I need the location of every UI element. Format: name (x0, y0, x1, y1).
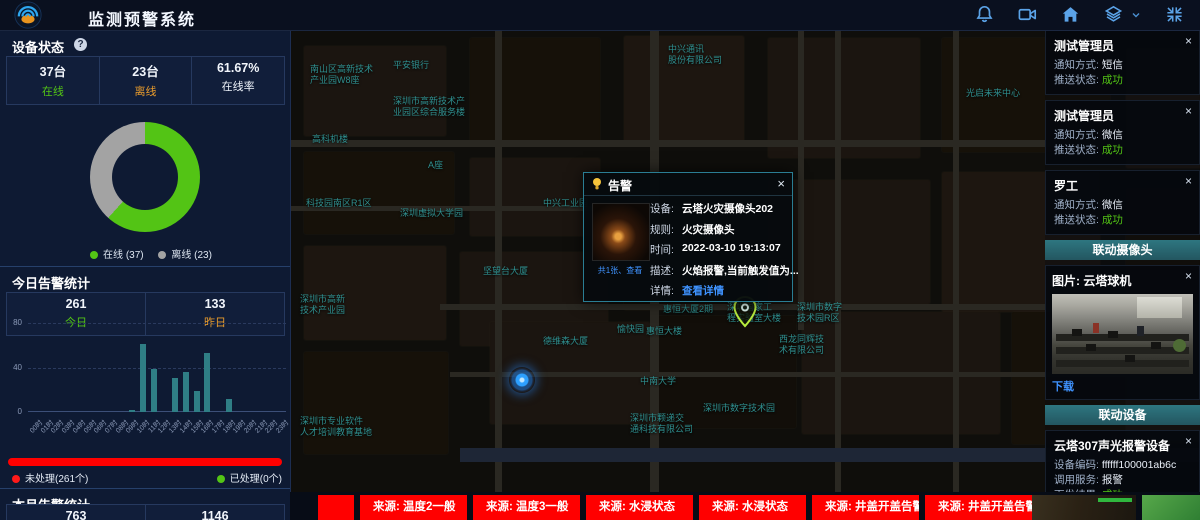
legend-dot-online (90, 251, 98, 259)
popup-row: 详情:查看详情 (650, 283, 786, 298)
video-camera-icon[interactable] (1018, 5, 1037, 24)
map-label: 德维森大厦 (543, 336, 588, 347)
notification-card: 测试管理员×通知方式: 微信推送状态: 成功 (1045, 100, 1200, 165)
alarm-bulb-icon (591, 177, 603, 196)
camera-section-header: 联动摄像头 (1045, 240, 1200, 260)
y-tick-label: 80 (2, 318, 22, 327)
processed-item: 已处理(0个) (205, 470, 282, 485)
ticker-item[interactable]: 来源: 温度3一般 (473, 495, 580, 520)
device-card-row: 调用服务: 报警 (1054, 473, 1191, 488)
map-label: 深圳市数字 技术园R区 (797, 302, 842, 324)
bar-14时 (183, 372, 189, 412)
row-value: 短信 (1102, 59, 1123, 71)
map-label: 深圳市数字技术园 (703, 403, 775, 414)
row-value: ffffff100001ab6c (1102, 459, 1176, 471)
device-card: 云塔307声光报警设备×设备编码: ffffff100001ab6c调用服务: … (1045, 430, 1200, 492)
photo-monitor (1108, 331, 1118, 338)
help-icon[interactable]: ? (74, 38, 87, 51)
ticker-item[interactable]: 来源: 井盖开盖告警 (812, 495, 919, 520)
device-list: 云塔307声光报警设备×设备编码: ffffff100001ab6c调用服务: … (1045, 430, 1200, 492)
row-label: 推送状态: (1054, 144, 1102, 156)
close-icon[interactable]: × (1185, 174, 1192, 188)
notification-panel: 测试管理员×通知方式: 短信推送状态: 成功测试管理员×通知方式: 微信推送状态… (1045, 30, 1200, 492)
legend-dot-offline (158, 251, 166, 259)
notification-card-row: 通知方式: 微信 (1054, 198, 1191, 213)
map-label: 中兴通讯 股份有限公司 (668, 44, 722, 66)
row-label: 设备编码: (1054, 459, 1102, 471)
legend-online: 在线 (37) (103, 250, 144, 261)
photo-person (1137, 326, 1144, 336)
row-value: 成功 (1102, 74, 1123, 86)
popup-row: 设备:云塔火灾摄像头202 (650, 201, 786, 216)
left-stats-panel: 设备状态 ? 37台 在线 23台 离线 61.67% 在线率 在线 (37) … (0, 30, 291, 520)
map-label: 深圳市专业软件 人才培训教育基地 (300, 416, 372, 438)
popup-row-label: 设备: (650, 201, 682, 216)
y-tick-label: 0 (2, 407, 22, 416)
device-status-donut (90, 122, 200, 232)
popup-row: 描述:火焰报警,当前触发值为... (650, 263, 786, 278)
monitoring-dashboard: 监测预警系统 设备状态 ? (0, 0, 1200, 520)
map-label: 深圳市高新 技术产业园 (300, 294, 345, 316)
close-icon[interactable]: × (1185, 104, 1192, 118)
stat-this-month: 763 (7, 505, 146, 520)
thumbnail-overlay-text (1098, 498, 1132, 502)
camera-card-title: 图片: 云塔球机 (1052, 272, 1193, 289)
bar-09时 (129, 410, 135, 412)
stat-online-rate: 61.67% 在线率 (192, 57, 284, 104)
ticker-item[interactable]: 来源: 水浸状态 (586, 495, 693, 520)
row-value: 成功 (1102, 214, 1123, 226)
bar-13时 (172, 378, 178, 412)
notification-card-row: 推送状态: 成功 (1054, 143, 1191, 158)
y-tick-label: 40 (2, 363, 22, 372)
stat-offline: 23台 离线 (100, 57, 193, 104)
bar-10时 (140, 344, 146, 412)
row-label: 推送状态: (1054, 74, 1102, 86)
gridline (28, 323, 286, 324)
close-icon[interactable]: × (1185, 434, 1192, 448)
close-icon[interactable]: × (1185, 34, 1192, 48)
photo-plant (1173, 339, 1186, 352)
download-link[interactable]: 下载 (1052, 378, 1193, 394)
photo-desk-row (1056, 360, 1189, 367)
photo-person (1093, 323, 1099, 333)
ticker-item[interactable]: 来源: 水浸状态 (699, 495, 806, 520)
map-label: 深圳市颗递交 通科技有限公司 (630, 413, 693, 435)
ticker-item[interactable]: 来源: 井盖开盖告警 (925, 495, 1032, 520)
processed-label: 已处理(0个) (230, 474, 282, 485)
map-label: 光启未来中心 (966, 88, 1020, 99)
map-label: 科技园南区R1区 (306, 198, 372, 209)
unprocessed-item: 未处理(261个) (0, 470, 88, 485)
layers-icon[interactable] (1104, 5, 1123, 24)
photo-monitor (1072, 329, 1082, 336)
stat-last-month: 1146 (146, 505, 284, 520)
donut-hole (112, 144, 178, 210)
app-logo-icon (14, 1, 42, 34)
map-label: 坚望台大厦 (483, 266, 528, 277)
bar-18时 (226, 399, 232, 412)
x-axis (28, 411, 286, 412)
alarm-popup: 告警 × 共1张、查看 设备:云塔火灾摄像头202规则:火灾摄像头时间:2022… (583, 172, 793, 302)
view-details-link[interactable]: 查看详情 (682, 283, 724, 298)
ticker-items: 来源: 温度2一般来源: 温度3一般来源: 水浸状态来源: 水浸状态来源: 井盖… (318, 495, 1032, 520)
photo-monitor (1125, 355, 1135, 362)
map-label: 愉快园 (617, 324, 644, 335)
header-toolbar (975, 5, 1184, 24)
ticker-thumbnail-green[interactable] (1142, 495, 1200, 520)
map-label: 惠恒大楼 (646, 326, 682, 337)
popup-row-label: 详情: (650, 283, 682, 298)
page-title: 监测预警系统 (88, 6, 196, 30)
bell-icon[interactable] (975, 5, 994, 24)
photo-monitor (1151, 342, 1161, 349)
popup-row-value: 火焰报警,当前触发值为... (682, 263, 799, 278)
row-value: 报警 (1102, 474, 1123, 486)
popup-title: 告警 (608, 177, 632, 194)
unprocessed-dot (12, 475, 20, 483)
x-axis-labels: 00时01时02时03时04时05时06时07时08时09时10时11时12时1… (28, 415, 286, 445)
device-status-table: 37台 在线 23台 离线 61.67% 在线率 (6, 56, 285, 105)
gridline (28, 368, 286, 369)
device-section-header: 联动设备 (1045, 405, 1200, 425)
donut-legend: 在线 (37) 离线 (23) (0, 246, 290, 261)
popup-row-label: 时间: (650, 242, 682, 257)
alarm-thumbnail[interactable] (592, 203, 650, 261)
popup-row: 规则:火灾摄像头 (650, 222, 786, 237)
chevron-down-icon[interactable] (1131, 10, 1141, 20)
popup-row-value: 火灾摄像头 (682, 222, 735, 237)
alarm-popup-rows: 设备:云塔火灾摄像头202规则:火灾摄像头时间:2022-03-10 19:13… (650, 201, 786, 304)
unprocessed-label: 未处理(261个) (25, 474, 88, 485)
notification-card-title: 罗工 (1054, 177, 1191, 194)
ticker-item[interactable] (318, 495, 354, 520)
close-icon[interactable]: × (1185, 269, 1192, 283)
today-alarm-section: 今日告警统计 (0, 266, 290, 291)
bar-15时 (194, 391, 200, 412)
hourly-bar-chart: 04080 (28, 323, 286, 412)
ticker-thumbnail-dark[interactable] (1032, 495, 1136, 520)
device-card-title: 云塔307声光报警设备 (1054, 437, 1191, 454)
map-label: 西龙同辉技 术有限公司 (779, 334, 824, 356)
row-label: 推送状态: (1054, 214, 1102, 226)
app-header: 监测预警系统 (0, 0, 1200, 31)
close-icon[interactable]: × (777, 176, 785, 191)
device-card-row: 设备编码: ffffff100001ab6c (1054, 458, 1191, 473)
map-label: 南山区高新技术 产业园W8座 (310, 64, 373, 86)
map-label: 中南大学 (640, 376, 676, 387)
row-label: 通知方式: (1054, 199, 1102, 211)
map-marker-blue[interactable] (509, 367, 535, 393)
camera-snapshot[interactable] (1052, 294, 1193, 374)
device-status-title: 设备状态 (12, 37, 64, 56)
photo-desk-row (1056, 347, 1189, 354)
row-value: 微信 (1102, 199, 1123, 211)
popup-row-value: 2022-03-10 19:13:07 (682, 242, 781, 257)
notification-card-title: 测试管理员 (1054, 37, 1191, 54)
process-legend: 未处理(261个) 已处理(0个) (0, 470, 290, 484)
map-label: 惠恒大厦2期 (663, 304, 713, 315)
notification-card-title: 测试管理员 (1054, 107, 1191, 124)
popup-row-value: 云塔火灾摄像头202 (682, 201, 773, 216)
month-alarm-table: 763 1146 (6, 504, 285, 520)
thumbnail-caption[interactable]: 共1张、查看 (586, 265, 654, 276)
bar-11时 (151, 369, 157, 412)
map-label: 高科机楼 (312, 134, 348, 145)
ticker-item[interactable]: 来源: 温度2一般 (360, 495, 467, 520)
popup-row: 时间:2022-03-10 19:13:07 (650, 242, 786, 257)
notification-card-row: 推送状态: 成功 (1054, 213, 1191, 228)
legend-offline: 离线 (23) (171, 250, 212, 261)
photo-monitor (1086, 344, 1096, 351)
camera-card: × 图片: 云塔球机 下载 (1045, 265, 1200, 400)
notification-card-row: 推送状态: 成功 (1054, 73, 1191, 88)
notification-card-row: 通知方式: 短信 (1054, 58, 1191, 73)
map-label: 平安银行 (393, 60, 429, 71)
map-label: A座 (428, 160, 443, 171)
notification-list: 测试管理员×通知方式: 短信推送状态: 成功测试管理员×通知方式: 微信推送状态… (1045, 30, 1200, 235)
notification-card: 罗工×通知方式: 微信推送状态: 成功 (1045, 170, 1200, 235)
device-status-section: 设备状态 ? (0, 30, 290, 55)
row-label: 通知方式: (1054, 59, 1102, 71)
stat-online: 37台 在线 (7, 57, 100, 104)
row-label: 通知方式: (1054, 129, 1102, 141)
fullscreen-icon[interactable] (1165, 5, 1184, 24)
row-label: 调用服务: (1054, 474, 1102, 486)
popup-row-label: 规则: (650, 222, 682, 237)
notification-card: 测试管理员×通知方式: 短信推送状态: 成功 (1045, 30, 1200, 95)
today-alarm-title: 今日告警统计 (12, 273, 90, 292)
row-value: 成功 (1102, 144, 1123, 156)
map-label: 中兴工业园 (543, 198, 588, 209)
notification-card-row: 通知方式: 微信 (1054, 128, 1191, 143)
processed-dot (217, 475, 225, 483)
bar-16时 (204, 353, 210, 412)
row-value: 微信 (1102, 129, 1123, 141)
alarm-ticker: 来源: 温度2一般来源: 温度3一般来源: 水浸状态来源: 水浸状态来源: 井盖… (290, 492, 1200, 520)
photo-window (1137, 297, 1182, 318)
map-label: 深圳市高新技术产 业园区综合服务楼 (393, 96, 465, 118)
home-icon[interactable] (1061, 5, 1080, 24)
map-label: 深圳虚拟大学园 (400, 208, 463, 219)
alarm-popup-header: 告警 × (584, 173, 792, 196)
unprocessed-progress-bar (8, 458, 282, 466)
popup-row-label: 描述: (650, 263, 682, 278)
